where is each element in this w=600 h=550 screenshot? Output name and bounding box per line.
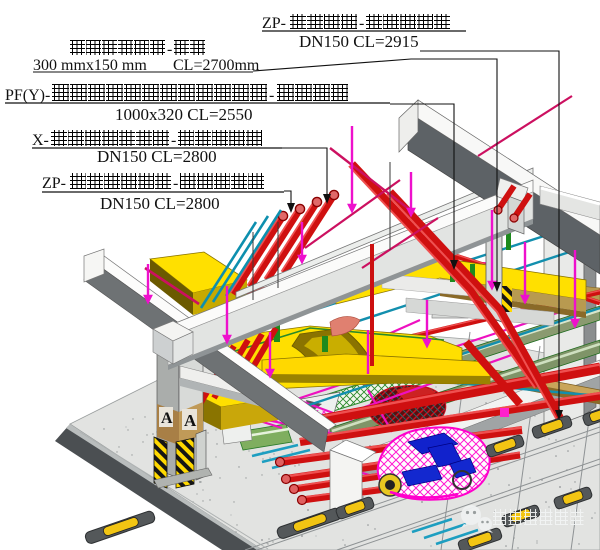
svg-text:-: -	[269, 87, 274, 104]
svg-text:X-: X-	[32, 132, 49, 149]
svg-text:-: -	[167, 41, 172, 58]
svg-text:-: -	[173, 175, 178, 192]
svg-text:-: -	[359, 15, 364, 32]
svg-text:ZP-: ZP-	[262, 15, 286, 32]
svg-text:A: A	[184, 411, 197, 430]
svg-text:A: A	[161, 410, 173, 427]
svg-text:1000x320 CL=2550: 1000x320 CL=2550	[115, 105, 253, 124]
svg-text:ZP-: ZP-	[42, 175, 66, 192]
svg-text:DN150 CL=2800: DN150 CL=2800	[100, 194, 220, 213]
svg-text:DN150 CL=2800: DN150 CL=2800	[97, 147, 217, 166]
svg-text:PF(Y)-: PF(Y)-	[5, 87, 50, 104]
svg-text:DN150 CL=2915: DN150 CL=2915	[299, 32, 419, 51]
